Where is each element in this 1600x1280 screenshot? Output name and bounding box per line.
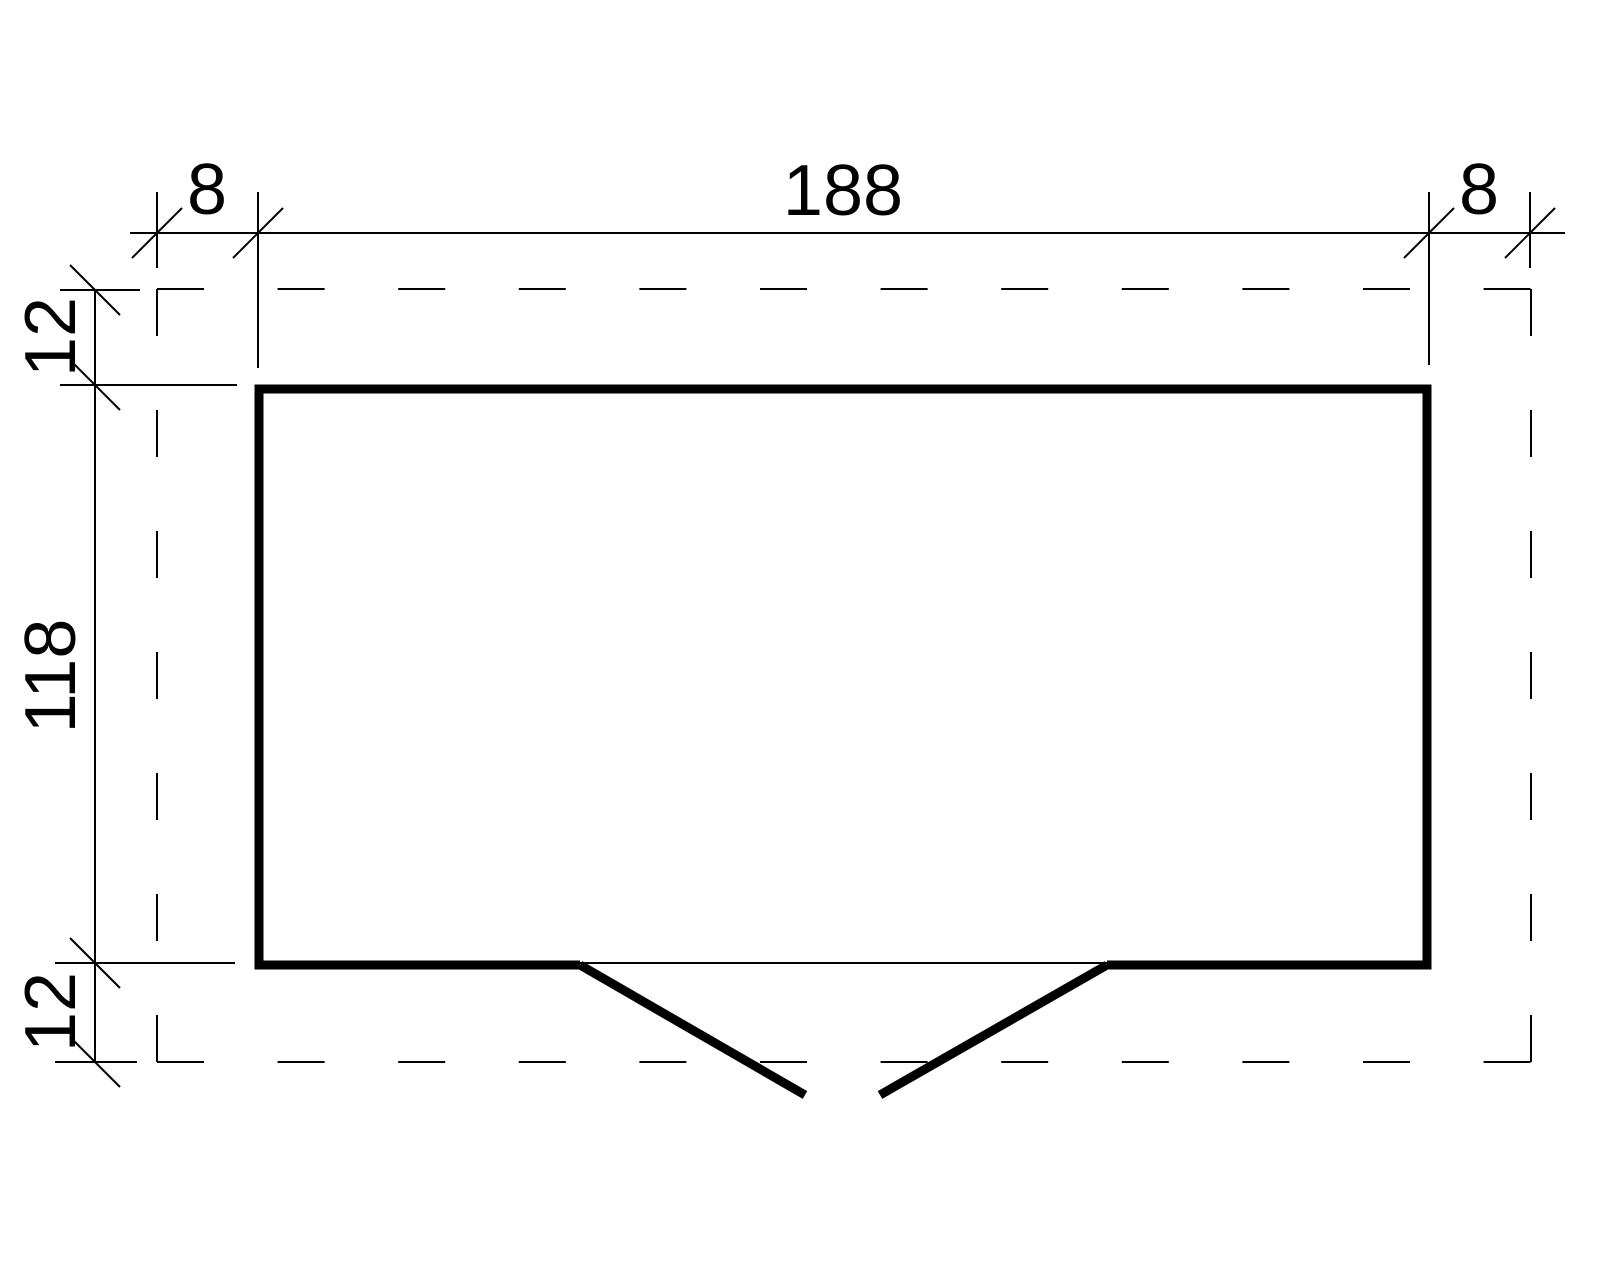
roof-overhang-outline: [157, 289, 1531, 1062]
door-leaf-left: [580, 965, 805, 1095]
floor-plan-drawing: 8 188 8 12 118 12: [0, 0, 1600, 1280]
dim-label-side-overhang-top: 12: [11, 297, 91, 377]
floor-plan-canvas: 8 188 8 12 118 12: [0, 0, 1600, 1280]
building-outline: [259, 389, 1427, 965]
dim-label-building-width: 188: [783, 151, 903, 231]
dim-label-top-overhang-left: 8: [187, 150, 227, 230]
dim-label-building-depth: 118: [11, 619, 91, 734]
dim-label-side-overhang-bottom: 12: [11, 972, 91, 1052]
door-leaf-right: [880, 965, 1107, 1095]
dim-label-top-overhang-right: 8: [1459, 150, 1499, 230]
